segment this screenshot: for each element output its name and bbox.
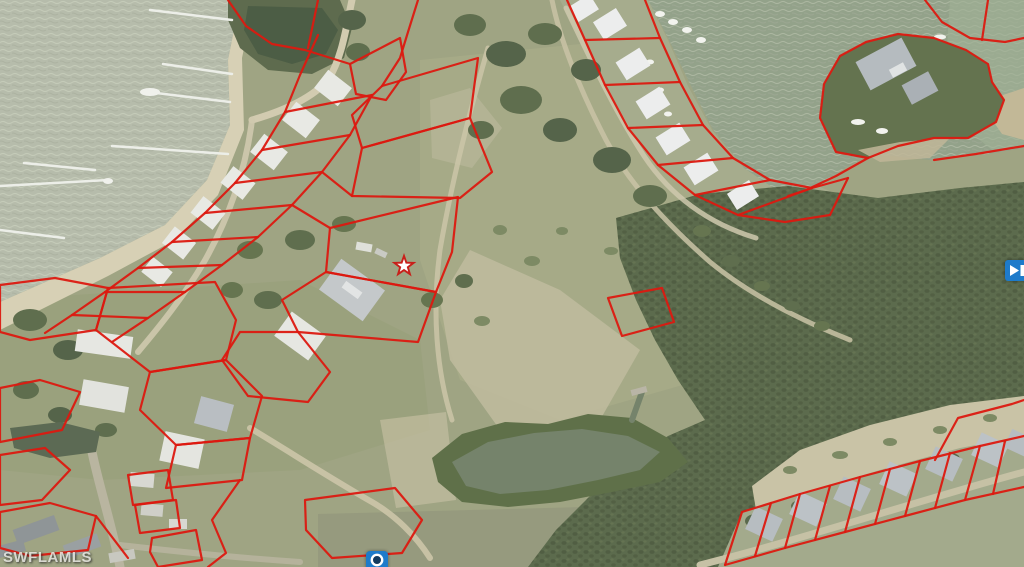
palm <box>693 225 711 237</box>
boat <box>668 19 678 25</box>
boat <box>103 178 113 184</box>
palm <box>784 301 800 311</box>
aerial-map[interactable]: SWFLAMLS <box>0 0 1024 567</box>
tree <box>254 291 282 309</box>
shrub <box>604 247 618 255</box>
map-canvas <box>0 0 1024 567</box>
boat <box>655 11 665 17</box>
boat <box>876 128 888 134</box>
tree <box>338 10 366 30</box>
shrub <box>524 256 540 266</box>
tree <box>486 41 526 67</box>
tree <box>13 309 47 331</box>
tree <box>571 59 601 81</box>
tree <box>593 147 631 173</box>
tuft <box>883 438 897 446</box>
pan-right-button[interactable] <box>1005 260 1024 281</box>
palm <box>814 321 830 331</box>
tree <box>454 14 486 36</box>
next-arrow-icon <box>1007 262 1024 279</box>
tree <box>346 43 370 61</box>
palm <box>722 255 740 267</box>
boat <box>140 88 160 96</box>
terrain-layer <box>0 0 1024 567</box>
boat <box>851 119 865 125</box>
boat <box>696 37 706 43</box>
tuft <box>983 414 997 422</box>
tuft <box>832 451 848 459</box>
boat <box>682 27 692 33</box>
tree <box>455 274 473 288</box>
mls-watermark: SWFLAMLS <box>3 549 92 566</box>
tree <box>500 86 542 114</box>
palm <box>754 281 770 291</box>
street-view-button[interactable] <box>366 551 388 567</box>
tree <box>285 230 315 250</box>
tuft <box>933 426 947 434</box>
boat <box>664 112 672 117</box>
tree <box>543 118 577 142</box>
lens-ring-icon <box>366 551 388 567</box>
tuft <box>783 466 797 474</box>
tree <box>221 282 243 298</box>
shed-roof <box>141 503 164 517</box>
tree <box>528 23 562 45</box>
tree <box>633 185 667 207</box>
shrub <box>556 227 568 235</box>
shrub <box>474 316 490 326</box>
shrub <box>493 225 507 235</box>
